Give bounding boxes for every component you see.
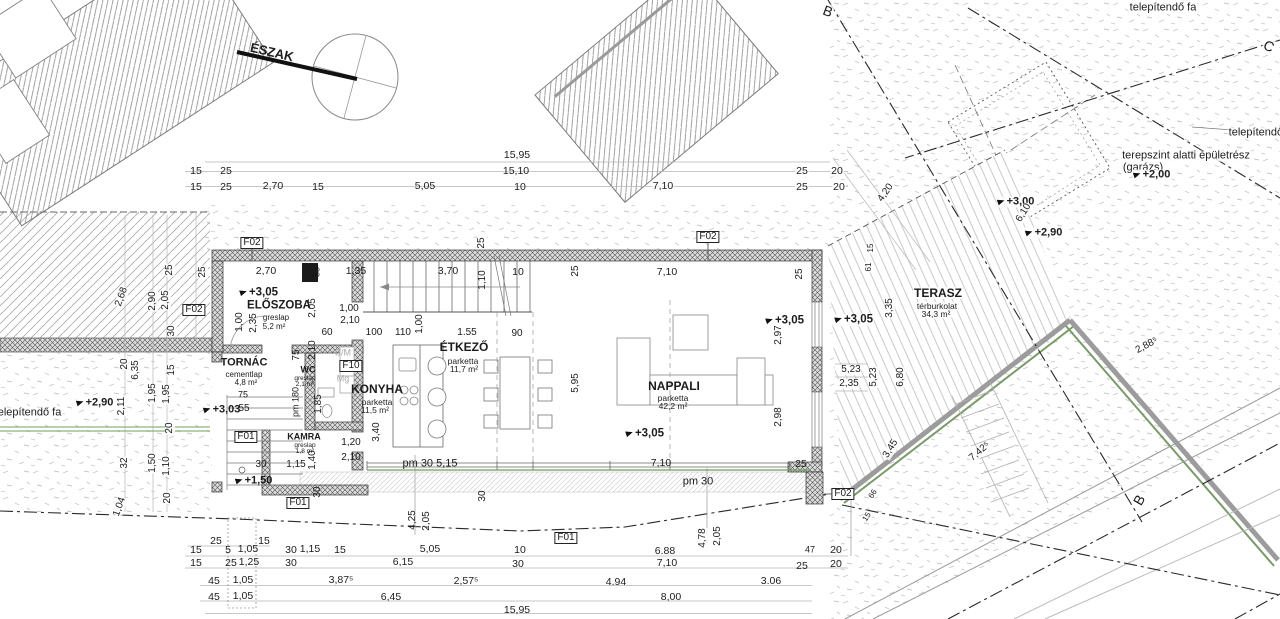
dim-label: 2,57⁵ bbox=[454, 576, 479, 587]
dim-label: 1,10 bbox=[162, 455, 172, 476]
dim-label: 15 bbox=[867, 243, 875, 254]
dim-label: 75 bbox=[292, 349, 302, 360]
dim-label: 3,40 bbox=[372, 422, 382, 441]
dim-label: 47 bbox=[805, 546, 815, 555]
dim-label: 25 bbox=[210, 536, 222, 547]
site-text-tree-top: telepítendő fa bbox=[1129, 3, 1198, 14]
dim-label: 35 bbox=[313, 267, 322, 277]
opening-label-f02: F02 bbox=[240, 237, 263, 249]
dim-label: 2,05 bbox=[161, 289, 171, 310]
dim-label: 7,10 bbox=[657, 558, 677, 569]
dim-label: 20 bbox=[832, 182, 846, 193]
dim-label: 5,23 bbox=[869, 366, 879, 387]
dim-label: 1,25 bbox=[239, 557, 259, 568]
dim-label: 11,7 m² bbox=[450, 365, 478, 374]
dim-label: 1,15 bbox=[286, 460, 305, 470]
dim-label: 42,2 m² bbox=[659, 402, 688, 411]
dim-label: 25 bbox=[795, 182, 809, 193]
dim-label: pm 30 5,15 bbox=[402, 459, 457, 470]
room-label-terasz: TERASZ bbox=[913, 287, 963, 299]
level-marker: +3,03 bbox=[204, 405, 241, 416]
dim-label: 15 bbox=[190, 558, 202, 569]
dim-label: 30 bbox=[285, 558, 297, 569]
opening-label-f01: F01 bbox=[234, 431, 257, 443]
dim-label: 1,50 bbox=[148, 452, 158, 473]
dim-label: 15 bbox=[334, 545, 346, 556]
dim-label: 3.06 bbox=[761, 576, 781, 587]
dim-label: 6,15 bbox=[393, 557, 413, 568]
dim-label: 7,10 bbox=[657, 267, 677, 278]
dim-label: 15 bbox=[190, 166, 202, 177]
dim-label: 10 bbox=[514, 182, 526, 193]
dim-label: 75 bbox=[238, 391, 248, 400]
dim-label: 25 bbox=[220, 182, 232, 193]
dim-label: 2,10 bbox=[308, 340, 318, 359]
room-label-eloszoba: ELŐSZOBA bbox=[247, 300, 311, 312]
dim-label: 6,45 bbox=[381, 592, 401, 603]
dim-label: 4.94 bbox=[606, 577, 626, 588]
dim-label: 30 bbox=[478, 490, 488, 501]
dim-label: 15 bbox=[190, 545, 202, 556]
dim-label: pm 180 bbox=[292, 387, 301, 417]
dim-label: 2,68 bbox=[114, 285, 131, 309]
dim-label: 3,45 bbox=[881, 437, 901, 461]
dim-label: 4,25 bbox=[408, 510, 418, 529]
dim-label: 45 bbox=[208, 592, 220, 603]
dim-label: 1,10 bbox=[478, 270, 488, 289]
dim-label: 1,40 bbox=[308, 450, 318, 469]
dim-label: 60 bbox=[321, 328, 332, 338]
dim-label: 2,05 bbox=[713, 525, 723, 546]
room-label-wc: WC bbox=[301, 366, 316, 375]
dim-label: 5,2 m² bbox=[263, 323, 286, 331]
dim-label: 1,00 bbox=[415, 314, 425, 333]
dim-label: 6,35 bbox=[131, 359, 141, 380]
dim-label: 32 bbox=[120, 456, 130, 469]
level-marker: +2,90 bbox=[76, 398, 115, 409]
dim-label: 25 bbox=[220, 166, 232, 177]
dim-label: 20 bbox=[830, 166, 844, 177]
dim-label: 6.88 bbox=[655, 546, 675, 557]
north-label: ÉSZAK bbox=[249, 41, 295, 64]
dim-label: 2,70 bbox=[263, 181, 283, 192]
dim-label: 4,8 m² bbox=[235, 379, 258, 387]
dim-label: 100 bbox=[366, 328, 383, 338]
floor-plan-canvas: ÉSZAKtelepítendő faBCtelepítendő faterep… bbox=[0, 0, 1280, 619]
dim-label: 3,87⁵ bbox=[329, 575, 354, 586]
dim-label: 1,05 bbox=[238, 544, 258, 555]
dim-label: 4,20 bbox=[876, 181, 897, 204]
dim-label: 5 bbox=[225, 545, 231, 556]
room-label-konyha: KONYHA bbox=[351, 383, 403, 395]
dim-label: 2,70 bbox=[256, 266, 276, 277]
level-marker: +3,05 bbox=[240, 287, 278, 299]
dim-label: 15,95 bbox=[504, 605, 530, 616]
dim-label: 5,05 bbox=[420, 544, 440, 555]
dim-label: 25 bbox=[571, 265, 581, 276]
opening-label-f01: F01 bbox=[286, 497, 309, 509]
dim-label: 55 bbox=[238, 404, 249, 414]
dim-label: 15 bbox=[167, 363, 177, 376]
dim-label: 10 bbox=[514, 545, 526, 556]
dim-label: 11,5 m² bbox=[361, 406, 389, 415]
dim-label: 34,3 m² bbox=[921, 310, 952, 319]
opening-label-f02: F02 bbox=[696, 231, 719, 243]
dim-label: 1,95 bbox=[162, 383, 172, 404]
dim-label: 15 bbox=[190, 182, 202, 193]
dim-label: 6,80 bbox=[896, 366, 906, 387]
appliance-label: Mg bbox=[337, 375, 350, 384]
dim-label: 2,35 bbox=[838, 379, 859, 389]
dim-label: 7,10 bbox=[652, 181, 674, 192]
dim-label: 4,78 bbox=[698, 527, 708, 548]
dim-label: 30 bbox=[255, 460, 266, 470]
site-text-basement: terepszint alatti épületrész bbox=[1121, 151, 1251, 162]
dim-label: 1.55 bbox=[457, 328, 476, 338]
dim-label: 7,42⁵ bbox=[967, 440, 993, 464]
opening-label-f01: F01 bbox=[554, 532, 577, 544]
level-marker: +2,90 bbox=[1025, 228, 1064, 239]
dim-label: 1,95 bbox=[148, 382, 158, 403]
dim-label: 110 bbox=[395, 328, 411, 338]
dim-label: 1,85 bbox=[314, 394, 324, 413]
dim-label: 2,10 bbox=[340, 316, 359, 326]
level-marker: +2,00 bbox=[1133, 170, 1172, 181]
room-label-etkezo: ÉTKEZŐ bbox=[440, 341, 489, 353]
dim-label: 1,20 bbox=[341, 438, 360, 448]
dim-label: 20 bbox=[163, 491, 173, 504]
opening-label-f02: F02 bbox=[831, 488, 854, 500]
level-marker: +3,05 bbox=[834, 314, 874, 326]
level-marker: +3,05 bbox=[766, 315, 804, 327]
dim-label: 1,05 bbox=[233, 591, 253, 602]
dim-label: 2,05 bbox=[422, 511, 432, 530]
dim-label: 1,04 bbox=[112, 495, 129, 519]
dim-label: 5,05 bbox=[415, 181, 435, 192]
dim-label: 25 bbox=[198, 265, 208, 278]
opening-label-f10: F10 bbox=[339, 360, 362, 372]
dim-label: 20 bbox=[830, 559, 842, 570]
site-text-tree-right: telepítendő fa bbox=[1228, 128, 1280, 139]
dim-label: 10 bbox=[512, 267, 524, 278]
dim-label: 25 bbox=[225, 558, 237, 569]
dim-label: 61 bbox=[865, 262, 873, 273]
dim-label: 2,98 bbox=[774, 407, 784, 426]
level-marker: +1,50 bbox=[236, 476, 273, 487]
dim-label: 2,88⁵ bbox=[1133, 336, 1160, 357]
dim-label: 5,23 bbox=[840, 365, 861, 375]
section-marker-c: C bbox=[1261, 37, 1278, 55]
dim-label: 20 bbox=[165, 421, 175, 434]
dim-label: 8,00 bbox=[661, 592, 681, 603]
opening-label-f02: F02 bbox=[182, 304, 205, 316]
annotation-layer: ÉSZAKtelepítendő faBCtelepítendő faterep… bbox=[0, 0, 1280, 619]
dim-label: 90 bbox=[511, 329, 522, 339]
dim-label: 30 bbox=[167, 324, 177, 337]
site-text-tree-left: telepítendő fa bbox=[0, 408, 62, 419]
dim-label: 45 bbox=[208, 576, 220, 587]
dim-label: 2,90 bbox=[148, 290, 158, 311]
dim-label: 66 bbox=[867, 487, 880, 500]
dim-label: 20 bbox=[830, 545, 842, 556]
appliance-label: S/M bbox=[335, 349, 351, 358]
level-marker: +3,05 bbox=[626, 428, 664, 440]
dim-label: 25 bbox=[795, 459, 807, 470]
section-marker-b-right: B bbox=[1130, 492, 1148, 509]
dim-label: 15,10 bbox=[503, 166, 529, 177]
dim-label: greslap bbox=[263, 314, 289, 322]
dim-label: 25 bbox=[165, 263, 175, 276]
dim-label: 1,15 bbox=[300, 544, 320, 555]
section-marker-b-top: B bbox=[820, 2, 835, 19]
dim-label: 30 bbox=[512, 559, 524, 570]
dim-label: 3,70 bbox=[438, 266, 458, 277]
room-label-tornac: TORNÁC bbox=[221, 358, 268, 369]
dim-label: 25 bbox=[795, 268, 805, 279]
dim-label: 3,35 bbox=[885, 297, 895, 318]
dim-label: 1,35 bbox=[346, 266, 366, 277]
room-label-kamra: KAMRA bbox=[287, 433, 321, 442]
dim-label: 1,00 bbox=[339, 304, 358, 314]
dim-label: 25 bbox=[795, 166, 809, 177]
dim-label: 5,95 bbox=[571, 373, 581, 392]
dim-label: 2,97 bbox=[774, 325, 784, 344]
dim-label: 30 bbox=[285, 545, 297, 556]
room-label-nappali: NAPPALI bbox=[648, 380, 700, 392]
dim-label: 15,95 bbox=[504, 150, 530, 161]
dim-label: 15 bbox=[861, 510, 874, 523]
dim-label: 25 bbox=[477, 236, 487, 249]
dim-label: 1,00 bbox=[235, 312, 245, 331]
dim-label: 2,35 bbox=[249, 313, 259, 332]
dim-label: 2,11 bbox=[117, 396, 127, 417]
dim-label: 15 bbox=[312, 182, 324, 193]
dim-label: 2,10 bbox=[341, 453, 360, 463]
dim-label: pm 30 bbox=[683, 477, 714, 488]
dim-label: 2,05 bbox=[308, 298, 318, 317]
dim-label: 1,05 bbox=[233, 575, 253, 586]
dim-label: 7,10 bbox=[651, 458, 671, 469]
dim-label: 25 bbox=[796, 561, 808, 572]
dim-label: 15 bbox=[258, 536, 270, 547]
dim-label: 20 bbox=[120, 357, 130, 370]
dim-label: 30 bbox=[313, 486, 323, 497]
